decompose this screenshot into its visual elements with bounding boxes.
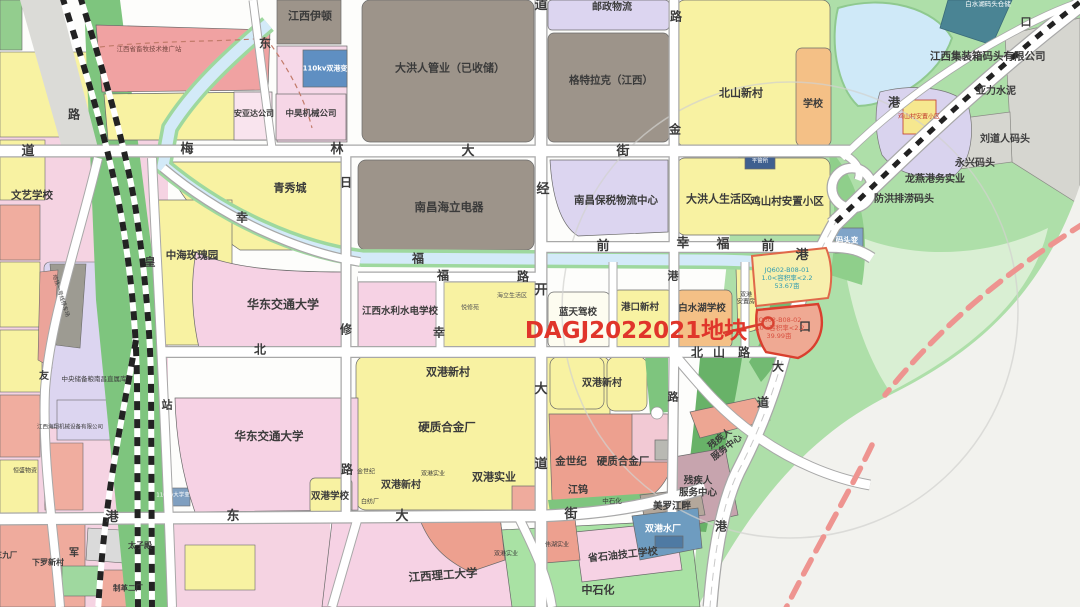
map-geometry	[0, 0, 1080, 607]
zoning-map: 道梅林大街东路路金道经开大道日修路幸福福路幸北前幸福前港港北山路口大道路港东大街…	[0, 0, 1080, 607]
parcel-jq602-b08-01	[752, 248, 831, 306]
parcel-jq602-b08-02	[756, 304, 822, 358]
